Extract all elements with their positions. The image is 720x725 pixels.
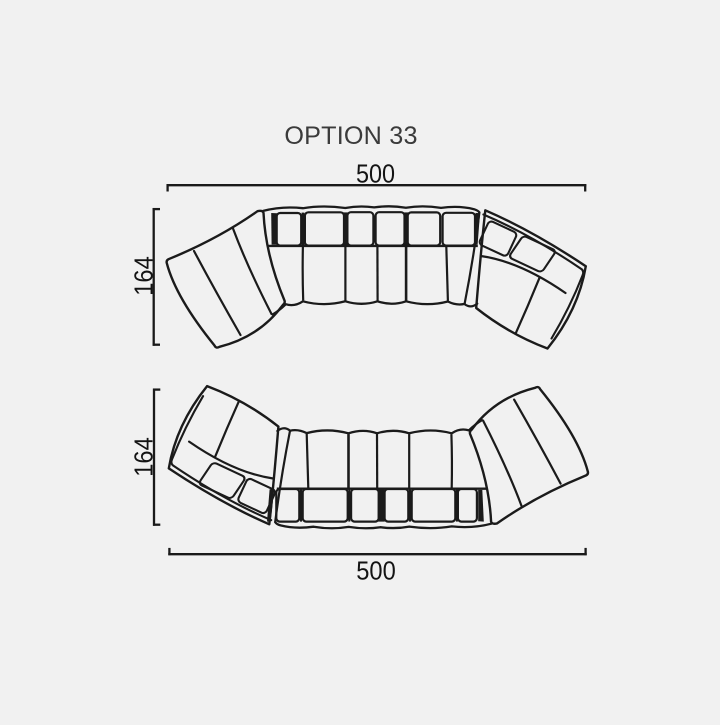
svg-text:500: 500 xyxy=(356,159,395,189)
svg-text:164: 164 xyxy=(128,256,158,296)
svg-text:500: 500 xyxy=(356,556,396,586)
svg-text:OPTION 33: OPTION 33 xyxy=(284,122,417,150)
svg-text:164: 164 xyxy=(128,437,158,477)
